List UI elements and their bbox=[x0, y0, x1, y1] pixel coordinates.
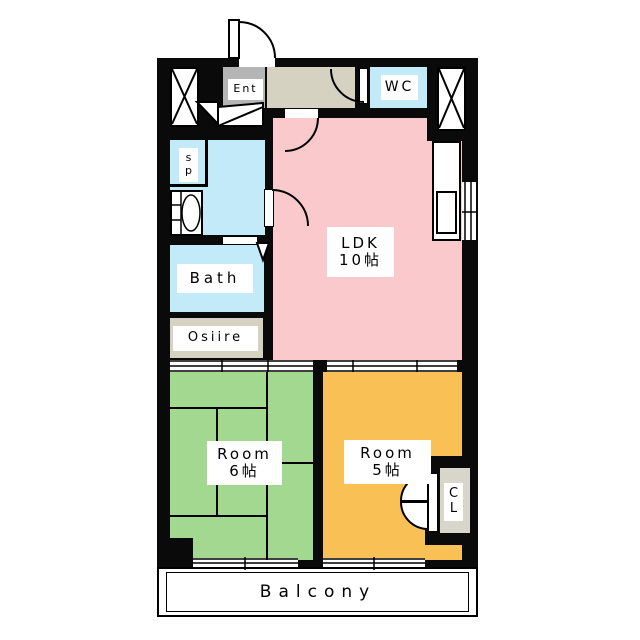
wall-notch bbox=[161, 538, 193, 562]
label-osiire: Osiire bbox=[173, 326, 258, 351]
label-wc: WC bbox=[381, 75, 418, 100]
entrance-door-gap bbox=[239, 58, 275, 67]
floorplan: Ent WC sp Bath Osiire LDK10帖 Room6帖 Room… bbox=[0, 0, 640, 640]
label-ent: Ent bbox=[228, 79, 263, 100]
room-hallway bbox=[267, 67, 355, 108]
label-cl: CL bbox=[444, 483, 463, 521]
ldk-door-gap bbox=[285, 109, 318, 118]
sliding-door-room5-icon bbox=[327, 360, 457, 372]
label-balcony: Balcony bbox=[200, 581, 436, 605]
label-room6: Room6帖 bbox=[207, 441, 282, 485]
label-room5: Room5帖 bbox=[344, 440, 431, 484]
entrance-door-icon bbox=[229, 20, 275, 58]
pillar-left bbox=[170, 67, 199, 127]
bath-door-strip bbox=[222, 236, 258, 245]
window-right-icon bbox=[462, 182, 476, 240]
label-bath: Bath bbox=[177, 264, 253, 293]
label-sp: sp bbox=[179, 148, 198, 182]
label-ldk: LDK10帖 bbox=[327, 227, 394, 277]
sliding-door-room6-icon bbox=[170, 360, 313, 372]
wc-door-leaf bbox=[359, 68, 368, 104]
pillar-right bbox=[437, 67, 466, 131]
washroom-door-leaf bbox=[264, 189, 274, 227]
washbasin bbox=[170, 190, 203, 236]
kitchen-sink bbox=[436, 191, 457, 234]
